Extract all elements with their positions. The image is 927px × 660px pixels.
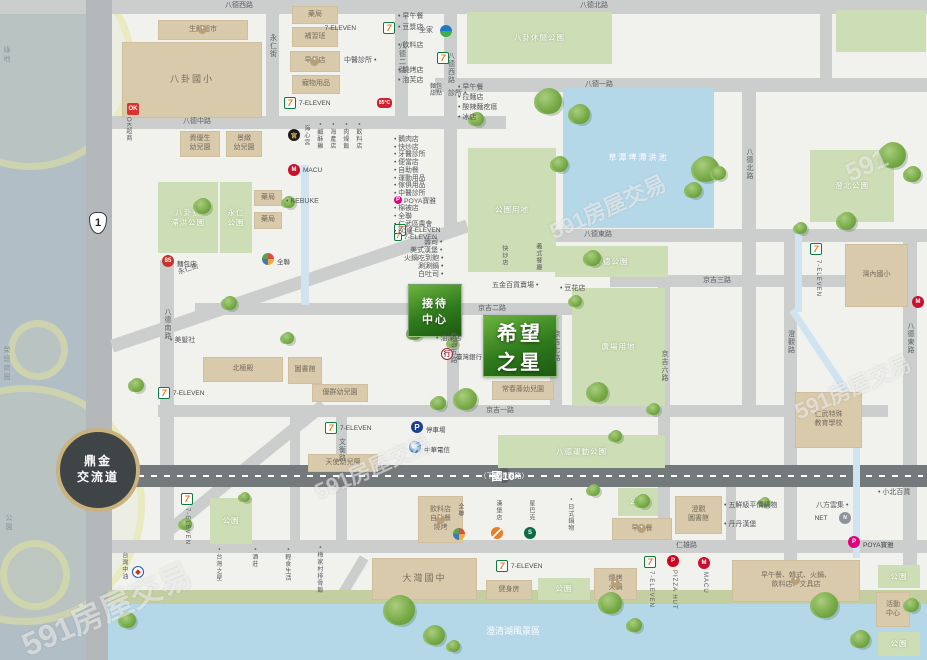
bubble-decoration [0, 0, 135, 170]
road-vertical [742, 92, 756, 407]
seven-icon: 7 [810, 243, 822, 255]
sbux-icon: S [524, 527, 536, 539]
bubble-decoration [8, 320, 68, 380]
map-label: • 梅家村排骨飯 [315, 546, 322, 594]
map-label: • 美髮社 [170, 337, 195, 345]
tree-icon [838, 212, 856, 230]
tree-icon [570, 104, 590, 124]
seven-icon: 7 [383, 22, 395, 34]
road-label: 澄觀路 [787, 330, 795, 354]
road-horizontal [158, 405, 888, 417]
tree-icon [628, 618, 642, 632]
e85-icon: 85°C [377, 98, 392, 108]
road-label: 京吉二路 [478, 305, 506, 313]
park-area: 永仁公園 [220, 182, 252, 253]
shop-icon: • [637, 524, 646, 533]
seven-icon: 7 [325, 422, 337, 434]
building-area: 藥局 [292, 6, 338, 24]
pizza-icon: P [667, 555, 679, 567]
building-area: 大灣國中 [372, 558, 477, 600]
road-horizontal [195, 303, 610, 315]
map-label: 八方雲集 • [816, 502, 848, 510]
tree-icon [686, 182, 702, 198]
map-label: • 冰店 [458, 114, 476, 122]
poi-label: NET [815, 515, 828, 522]
road-vertical [820, 0, 832, 78]
road-label: 仁雄路 [676, 542, 697, 550]
map-label: 7-ELEVEN [814, 260, 821, 297]
macu-icon: M [288, 164, 300, 176]
poi-label: 7-ELEVEN [340, 425, 371, 432]
poi-label: 停車場 [426, 424, 446, 434]
road-horizontal [0, 0, 927, 14]
poi-label: MACU [303, 167, 322, 174]
shop-icon: • [198, 25, 207, 34]
tree-icon [448, 640, 460, 652]
map-label: 白吐司 • [418, 271, 443, 279]
road-label: 京吉七路 [552, 330, 560, 362]
building-area: 優群幼兒園 [312, 384, 368, 402]
park-area: 公園 [878, 632, 920, 656]
tree-icon [130, 378, 144, 392]
park-area: 八卦休閒公園 [467, 12, 612, 64]
building-area: 景緻幼兒園 [226, 131, 262, 157]
tree-icon [588, 484, 600, 496]
stream [795, 230, 802, 312]
map-label: 海心宮 [302, 125, 309, 146]
poi-label: 7-ELEVEN [511, 563, 542, 570]
map-label: • 丹丹漢堡 [724, 521, 756, 529]
map-label: • 肉燥飯 [341, 123, 348, 150]
macu-icon: M [698, 557, 710, 569]
road-label: 八德東路 [906, 322, 914, 354]
tree-icon [585, 250, 601, 266]
map-label: 澄清湖風景區 [486, 626, 540, 636]
poi-label: 全聯 [277, 256, 290, 266]
building-area: 北極殿 [203, 357, 283, 382]
tree-icon [385, 595, 415, 625]
road-vertical [86, 0, 112, 660]
px-icon [262, 253, 274, 265]
burger-icon [491, 527, 503, 539]
tree-icon [195, 198, 211, 214]
map-label: 全家 [419, 27, 433, 35]
fami-icon [440, 25, 452, 37]
map-label: • 輕食生活 [283, 548, 290, 582]
map-label: 涮涮鍋 • [418, 263, 443, 271]
road-label: 京吉一路 [486, 407, 514, 415]
building-area: 灣內國小 [845, 244, 908, 307]
map-label: • 小北百貨 [878, 489, 910, 497]
tree-icon [600, 592, 622, 614]
map-label: OK超商 [124, 117, 131, 142]
map-label: 八德北路 [580, 2, 608, 10]
tree-icon [455, 388, 477, 410]
building-area: •早餐店 [290, 51, 340, 72]
tree-icon [588, 382, 608, 402]
tree-icon [812, 592, 838, 618]
tree-icon [223, 296, 237, 310]
building-area: 活動中心 [876, 592, 910, 627]
map-label: • KEBUKE [286, 198, 319, 206]
road-vertical [444, 14, 457, 232]
road-label: 京吉三路 [703, 277, 731, 285]
tree-icon [536, 88, 562, 114]
bubble-decoration [0, 540, 70, 610]
map-label: • 早午餐 [458, 84, 483, 92]
map-label: • 早午餐 [398, 13, 423, 21]
stream [301, 165, 309, 305]
reception-center-sign: 接待中心 [408, 284, 462, 337]
park-area: 公園 [538, 578, 590, 600]
map-label: 麵包甜點 [430, 84, 442, 98]
building-area: 藥局 [254, 212, 282, 229]
seven-icon: 7 [181, 493, 193, 505]
tree-icon [610, 430, 622, 442]
road-vertical [160, 260, 174, 540]
map-label: 快炒店 [500, 245, 507, 266]
poya-icon: P [848, 536, 860, 548]
map-label: 火鍋吃到飽 • [404, 255, 443, 263]
park-area: 八卦寮滯洪公園 [158, 182, 218, 253]
map-label: 7-ELEVEN [647, 571, 654, 608]
tree-icon [795, 222, 807, 234]
shop-icon: • [310, 57, 319, 66]
tree-icon [905, 166, 921, 182]
building-area: 澄觀圖書館 [675, 496, 722, 534]
map-label: • 海產店 [328, 123, 335, 150]
temple-icon: 宮 [288, 129, 300, 141]
road-label: 京吉六路 [660, 350, 668, 382]
map-label: • 油漆店 [436, 335, 461, 343]
tree-icon [432, 396, 446, 410]
building-area: 圖書館 [288, 357, 322, 384]
map-label: 全聯 [456, 503, 463, 517]
seven-icon: 7 [394, 233, 402, 241]
building-area: 資優生幼兒園 [180, 131, 220, 157]
road-label: 八德西路 [447, 52, 455, 84]
map-label: • 飲料店 [354, 123, 361, 150]
building-area: 藥局 [254, 190, 282, 206]
net-icon: N [839, 512, 851, 524]
park-area: 廣場用地 [572, 288, 665, 406]
building-area: •生鮮超市 [158, 20, 248, 40]
shop-icon: • [791, 576, 800, 585]
building-area: 健身房 [486, 580, 532, 600]
map-label: 漢堡店 [494, 500, 501, 521]
map-label: • 酸辣麵疙瘩 [458, 104, 497, 112]
tree-icon [240, 492, 250, 502]
map-label: 7-ELEVEN [183, 508, 190, 545]
poi-label: 7-ELEVEN [173, 390, 204, 397]
tree-icon [648, 403, 660, 415]
project-sign-hope-star: 希望之星 [483, 315, 557, 377]
tree-icon [552, 156, 568, 172]
tree-icon [905, 598, 919, 612]
poi-label: 7-ELEVEN [299, 100, 330, 107]
tree-icon [852, 630, 870, 648]
poi-label: POYA寶雅 [863, 539, 894, 549]
map-label: • 台灣之星 [214, 548, 221, 582]
location-map: 八德一路八德中路八德東路京吉三路京吉二路京吉一路仁雄路永仁街八德二路八德西路八德… [0, 0, 927, 660]
park-area: 八德運動公園 [498, 435, 665, 468]
map-label: 美式漢堡 • [410, 247, 442, 255]
map-label: 八德西路 [225, 2, 253, 10]
ok-icon: OK [127, 103, 139, 115]
poi-label: 7-ELEVEN [325, 25, 356, 32]
building-area: 八卦國小 [122, 42, 262, 118]
tree-icon [570, 295, 582, 307]
map-label: MACU [701, 572, 708, 594]
map-label: • 燒烤店 [398, 67, 423, 75]
seven-icon: 7 [158, 387, 170, 399]
map-label: 公園 [4, 514, 12, 532]
seven-icon: 7 [496, 560, 508, 572]
map-label: 壽司 • [424, 239, 442, 247]
tree-icon [636, 494, 650, 508]
road-label: 八德一路 [585, 81, 613, 89]
map-label: • 日式鍋物 [566, 498, 573, 532]
road-vertical [266, 14, 279, 118]
map-label: 中醫診所 • [344, 57, 376, 65]
expressway-label: 國10（下方澄觀路） [498, 468, 510, 483]
building-area: 常春藤幼兒園 [492, 381, 554, 400]
macu-icon: M [912, 296, 924, 308]
road-label: 八德中路 [183, 118, 211, 126]
road-label: 永仁街 [269, 34, 277, 58]
poi-label: 臺灣銀行 [456, 351, 482, 361]
park-area: 公園 [878, 565, 920, 588]
shop-icon: • [436, 515, 445, 524]
seven-icon: 7 [284, 97, 296, 109]
tree-icon [425, 625, 445, 645]
bakery-icon: 85 [162, 255, 174, 267]
seven-icon: 7 [644, 556, 656, 568]
park-area: 承德公園 [555, 246, 668, 277]
interchange-badge: 鼎金交流道 [56, 428, 140, 512]
map-label: • 酒莊 [250, 548, 257, 568]
map-label: 義式餐廳 [534, 243, 541, 271]
shop-icon: • [611, 579, 620, 588]
map-label: PIZZA HUT [670, 570, 677, 610]
map-label: • 豆花店 [560, 285, 585, 293]
pxball-icon [453, 528, 465, 540]
map-label: • 拉麵店 [458, 94, 483, 102]
map-label: • 五鮮級平價鍋物 [724, 502, 777, 510]
road-label: 文衡路 [338, 438, 346, 462]
building-area: •早午餐、韓式、火鍋、飲料店、文具店 [732, 560, 860, 602]
map-label: • 飲料店 [398, 42, 423, 50]
building-area: •早午餐 [612, 518, 672, 540]
map-label: 榮總商圈 [2, 346, 10, 382]
map-label: 綠地 [2, 46, 10, 64]
road-label: 八德東路 [584, 231, 612, 239]
map-label: • 鹹酥雞 [315, 123, 322, 150]
map-label: 星巴克 [527, 500, 534, 521]
building-area: 寵物用品 [292, 75, 340, 94]
park-area [836, 10, 926, 52]
map-label: • 泡芙店 [398, 77, 423, 85]
map-label: 五金百貨賣場 • [492, 282, 538, 290]
road-label: 八德南路 [163, 308, 171, 340]
road-label: 八德北路 [745, 148, 753, 180]
park-area: 公園 [210, 498, 252, 544]
tree-icon [712, 166, 726, 180]
tree-icon [282, 332, 294, 344]
park-area: 公園用地 [468, 148, 556, 272]
